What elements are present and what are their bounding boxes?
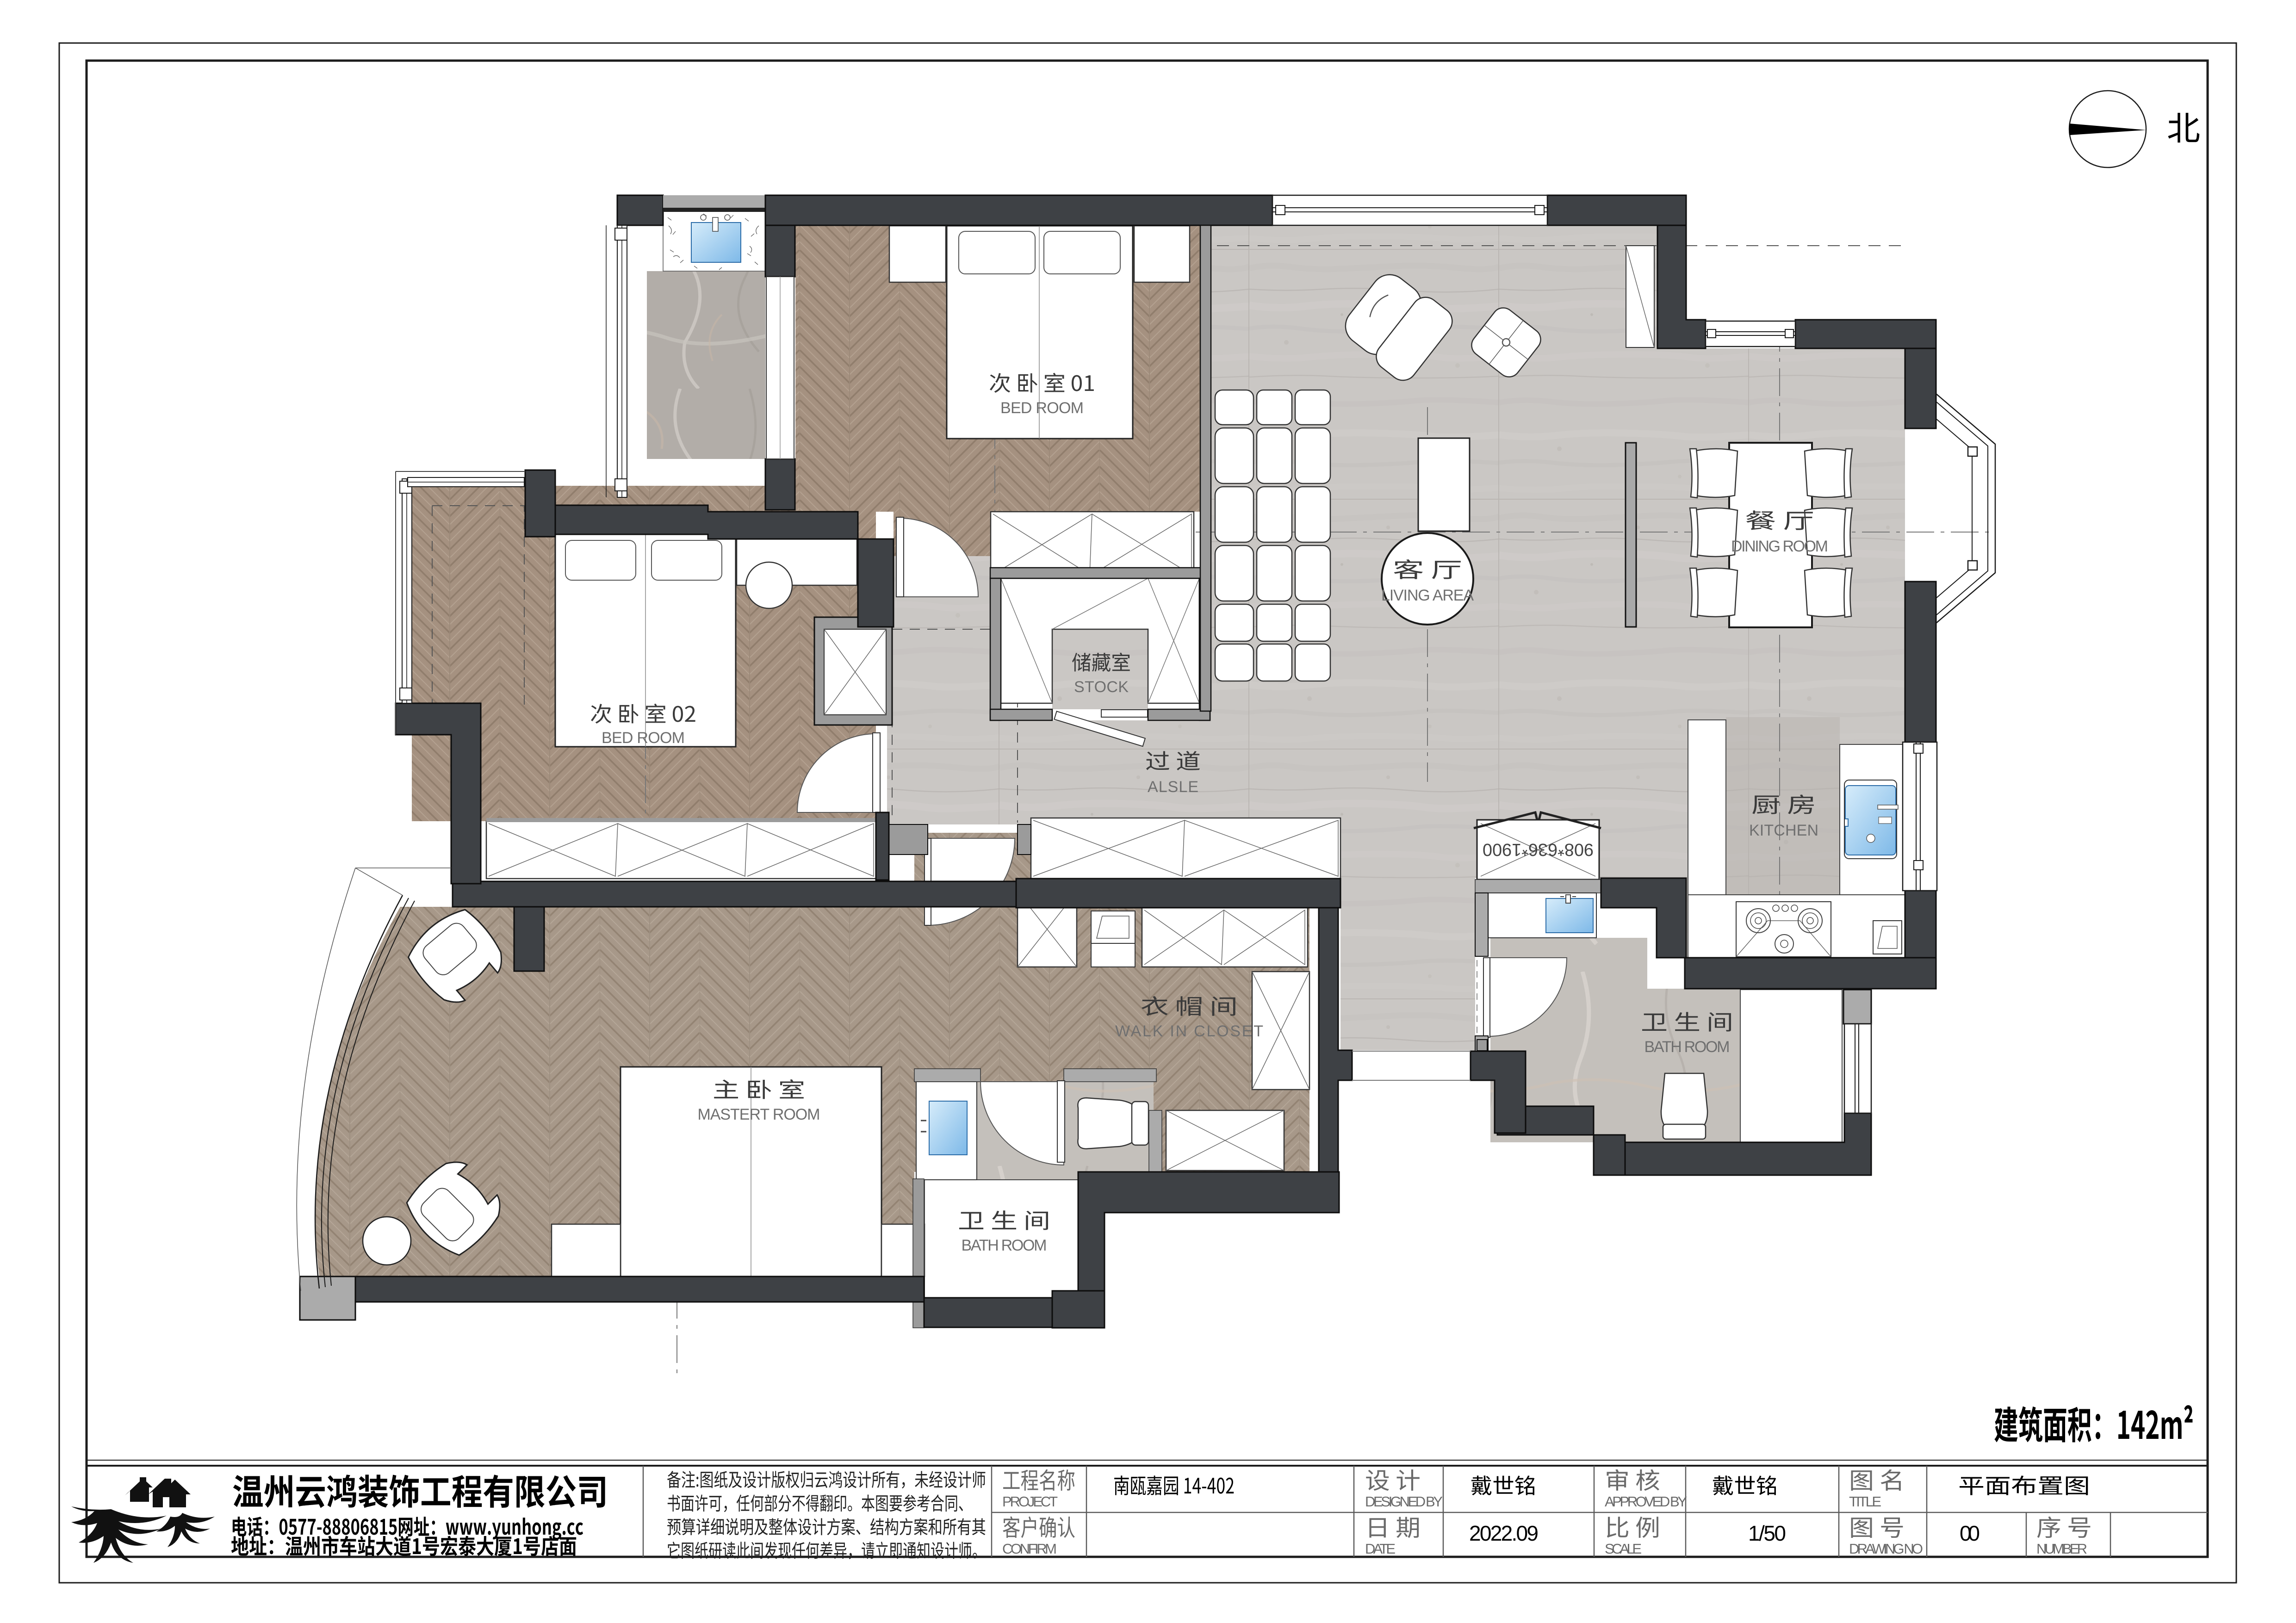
svg-text:ALSLE: ALSLE bbox=[1148, 778, 1198, 796]
svg-text:BED ROOM: BED ROOM bbox=[602, 729, 685, 747]
svg-text:BATH ROOM: BATH ROOM bbox=[962, 1237, 1047, 1254]
svg-text:DRAWING NO: DRAWING NO bbox=[1849, 1541, 1923, 1557]
svg-text:00: 00 bbox=[1960, 1521, 1980, 1545]
svg-text:CONFIRM: CONFIRM bbox=[1002, 1541, 1057, 1557]
svg-text:908*636*1900: 908*636*1900 bbox=[1483, 840, 1594, 859]
svg-text:2022.09: 2022.09 bbox=[1469, 1521, 1539, 1545]
svg-text:1/50: 1/50 bbox=[1748, 1521, 1786, 1545]
svg-text:BATH ROOM: BATH ROOM bbox=[1644, 1038, 1730, 1056]
svg-text:MASTERT ROOM: MASTERT ROOM bbox=[698, 1106, 820, 1123]
svg-text:LIVING AREA: LIVING AREA bbox=[1381, 587, 1474, 604]
svg-text:SCALE: SCALE bbox=[1605, 1541, 1642, 1557]
svg-text:APPROVED BY: APPROVED BY bbox=[1605, 1493, 1687, 1510]
svg-text:DESIGNED BY: DESIGNED BY bbox=[1365, 1493, 1443, 1510]
svg-text:KITCHEN: KITCHEN bbox=[1749, 822, 1818, 839]
svg-text:PROJECT: PROJECT bbox=[1002, 1493, 1058, 1510]
svg-text:TITLE: TITLE bbox=[1849, 1493, 1881, 1510]
svg-text:STOCK: STOCK bbox=[1074, 678, 1129, 696]
svg-text:DATE: DATE bbox=[1365, 1541, 1396, 1557]
svg-text:NUMBER: NUMBER bbox=[2036, 1541, 2087, 1557]
svg-text:BED ROOM: BED ROOM bbox=[1000, 399, 1084, 417]
svg-text:DINING ROOM: DINING ROOM bbox=[1731, 538, 1828, 555]
